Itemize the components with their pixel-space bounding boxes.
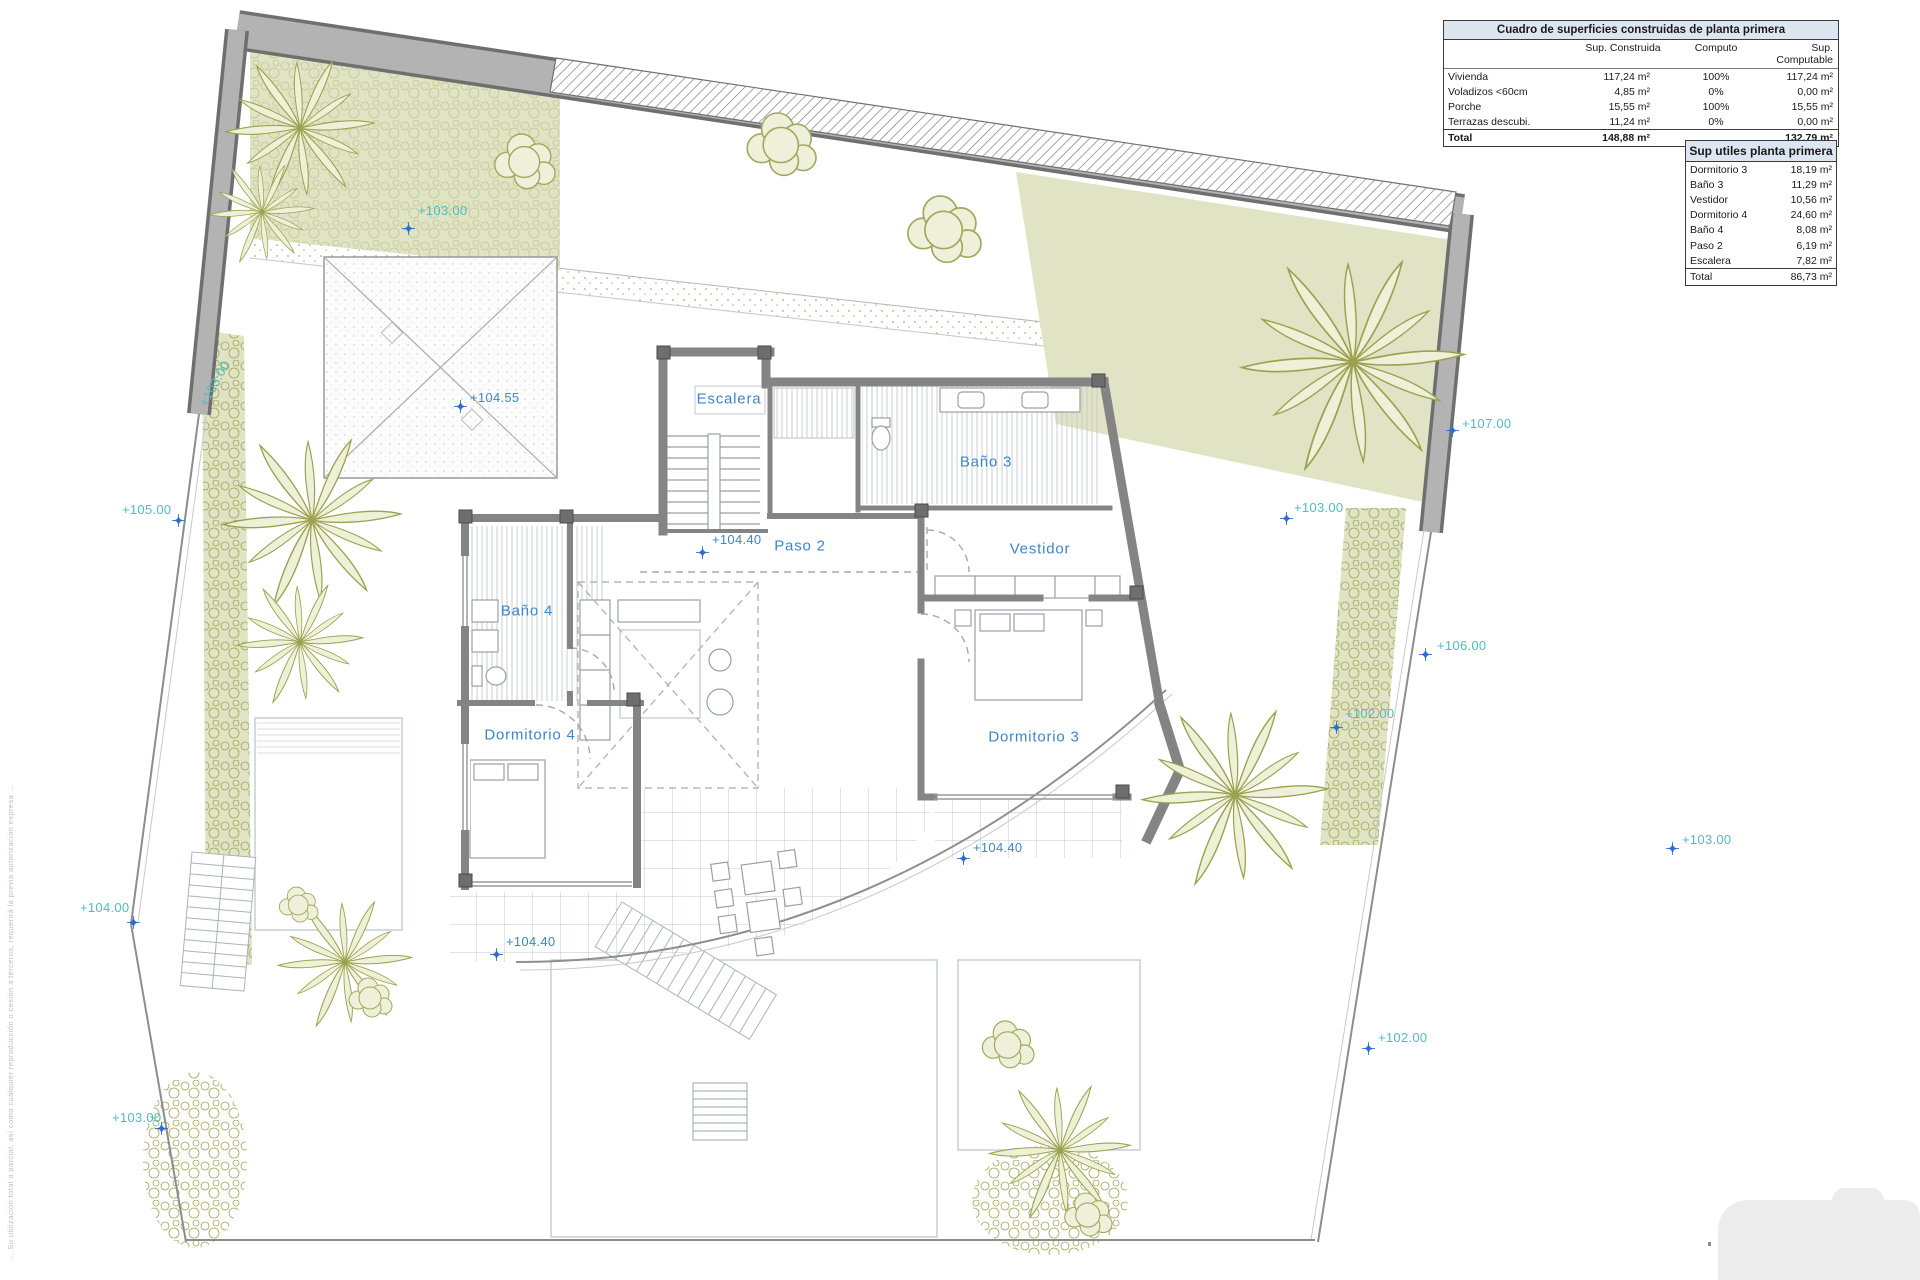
- cell: 10,56 m²: [1774, 194, 1836, 206]
- table-row: Vestidor 10,56 m²: [1686, 192, 1836, 207]
- cell: 24,60 m²: [1774, 209, 1836, 221]
- bush: [982, 1021, 1034, 1068]
- table-row: Dormitorio 3 18,19 m²: [1686, 162, 1836, 177]
- cell: 7,82 m²: [1774, 255, 1836, 267]
- cell: 0%: [1676, 86, 1756, 98]
- small-stair: [693, 1083, 747, 1140]
- site-plan-drawing: [0, 0, 1920, 1280]
- side-ladder-path: [180, 852, 255, 991]
- logo-placeholder: [1718, 1200, 1920, 1280]
- table-row: Baño 3 11,29 m²: [1686, 177, 1836, 192]
- built-areas-table-title: Cuadro de superficies construidas de pla…: [1444, 21, 1838, 40]
- col-header: Sup. Computable: [1756, 42, 1838, 66]
- useful-areas-table-title: Sup utiles planta primera: [1686, 141, 1836, 162]
- row-label: Vivienda: [1444, 71, 1570, 83]
- useful-areas-table: Sup utiles planta primera Dormitorio 3 1…: [1685, 140, 1837, 286]
- cell: 0,00 m²: [1756, 86, 1838, 98]
- row-label: Escalera: [1686, 255, 1774, 267]
- main-stair: [667, 386, 765, 531]
- cell: 18,19 m²: [1774, 164, 1836, 176]
- cell: 8,08 m²: [1774, 224, 1836, 236]
- row-label: Paso 2: [1686, 240, 1774, 252]
- shrub-cluster: [972, 1145, 1128, 1255]
- cell: 0%: [1676, 116, 1756, 128]
- cell: 148,88 m²: [1570, 132, 1676, 144]
- bush: [908, 196, 981, 262]
- cell: 86,73 m²: [1774, 271, 1836, 283]
- table-total-row: Total 86,73 m²: [1686, 268, 1836, 284]
- table-row: Terrazas descubi. 11,24 m² 0% 0,00 m²: [1444, 114, 1838, 129]
- row-label: Porche: [1444, 101, 1570, 113]
- shrub-cluster: [143, 1072, 247, 1248]
- row-label: Voladizos <60cm: [1444, 86, 1570, 98]
- col-header: Computo: [1676, 42, 1756, 66]
- row-label: Total: [1686, 271, 1774, 283]
- row-label: Total: [1444, 132, 1570, 144]
- palm-tree: [237, 584, 363, 703]
- cell: 4,85 m²: [1570, 86, 1676, 98]
- built-areas-table: Cuadro de superficies construidas de pla…: [1443, 20, 1839, 147]
- col-header: [1444, 42, 1570, 66]
- bush: [279, 887, 318, 922]
- table-row: Voladizos <60cm 4,85 m² 0% 0,00 m²: [1444, 84, 1838, 99]
- row-label: Terrazas descubi.: [1444, 116, 1570, 128]
- cell: 100%: [1676, 71, 1756, 83]
- copyright-side-note: … Su utilización total o parcial, así co…: [6, 470, 15, 1260]
- bush: [349, 978, 392, 1017]
- cell: 15,55 m²: [1756, 101, 1838, 113]
- cell: 117,24 m²: [1570, 71, 1676, 83]
- table-row: Paso 2 6,19 m²: [1686, 238, 1836, 253]
- cell: 11,29 m²: [1774, 179, 1836, 191]
- row-label: Dormitorio 3: [1686, 164, 1774, 176]
- row-label: Vestidor: [1686, 194, 1774, 206]
- table-row: Porche 15,55 m² 100% 15,55 m²: [1444, 99, 1838, 114]
- cell: 100%: [1676, 101, 1756, 113]
- green-areas: [143, 42, 1452, 1255]
- cell: 6,19 m²: [1774, 240, 1836, 252]
- stamp-mark: [1708, 1242, 1711, 1246]
- roof-block: [324, 257, 557, 478]
- row-label: Dormitorio 4: [1686, 209, 1774, 221]
- cell: 117,24 m²: [1756, 71, 1838, 83]
- cell: 15,55 m²: [1570, 101, 1676, 113]
- col-header: Sup. Construida: [1570, 42, 1676, 66]
- table-row: Dormitorio 4 24,60 m²: [1686, 208, 1836, 223]
- cell: 0,00 m²: [1756, 116, 1838, 128]
- table-row: Vivienda 117,24 m² 100% 117,24 m²: [1444, 69, 1838, 84]
- table-row: Escalera 7,82 m²: [1686, 253, 1836, 268]
- row-label: Baño 4: [1686, 224, 1774, 236]
- terrace-tiles: [450, 788, 1122, 962]
- row-label: Baño 3: [1686, 179, 1774, 191]
- table-row: Baño 4 8,08 m²: [1686, 223, 1836, 238]
- built-areas-table-header: Sup. Construida Computo Sup. Computable: [1444, 40, 1838, 69]
- cell: 11,24 m²: [1570, 116, 1676, 128]
